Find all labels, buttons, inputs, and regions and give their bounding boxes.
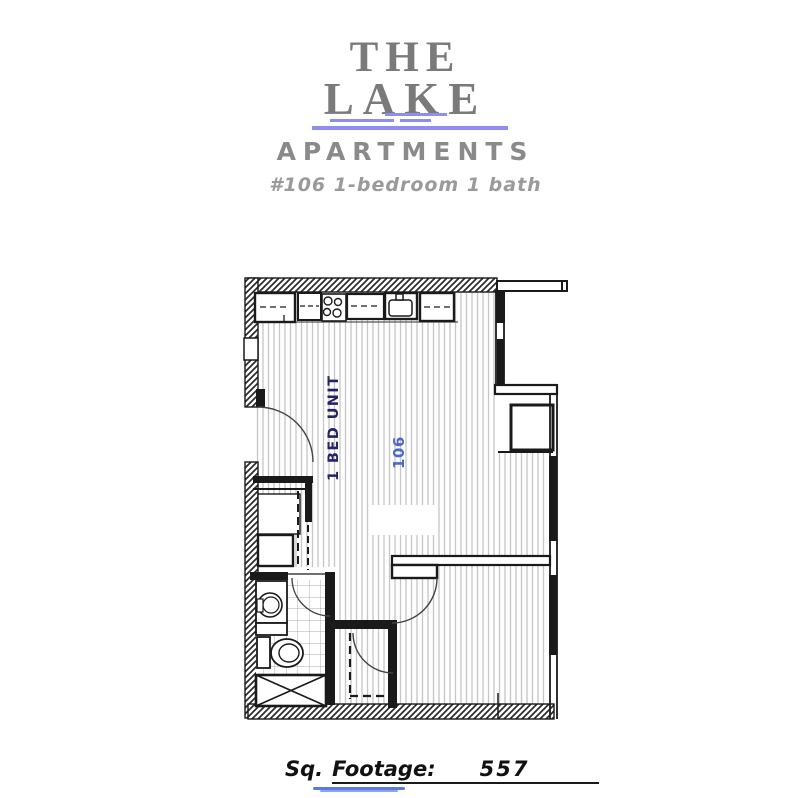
unit-subtitle: #106 1-bedroom 1 bath: [0, 174, 811, 196]
shaft-column: [511, 405, 553, 450]
toilet-icon: [271, 639, 303, 667]
window-bar: [549, 575, 557, 655]
brand-name-line1: THE: [0, 36, 811, 79]
blue-squiggle-underline-2: [320, 790, 398, 792]
kitchen: [253, 293, 458, 322]
brand-word-apartments: APARTMENTS: [0, 139, 811, 164]
window-bar: [496, 290, 505, 323]
unit-type-label: 1 BED UNIT: [326, 375, 342, 481]
bathroom: [250, 572, 335, 706]
logo-wave-line-4: [312, 126, 508, 130]
blank-label-patch: [372, 505, 437, 535]
window-bar: [549, 456, 557, 541]
square-footage-row: Sq. Footage: 557: [285, 757, 599, 784]
washer-icon: [258, 494, 300, 534]
sq-footage-underline: Footage: 557: [332, 757, 599, 784]
corridor-wall-extension: [497, 281, 567, 291]
flyer-page: THE LAKE APARTMENTS #106 1-bedroom 1 bat…: [0, 0, 811, 798]
dryer-icon: [258, 535, 293, 566]
window-bar: [497, 339, 504, 387]
logo-wave-line-1: [385, 113, 447, 116]
sq-footage-label: Footage:: [332, 757, 435, 781]
sq-footage-prefix: Sq.: [285, 757, 323, 781]
sq-footage-value: 557: [480, 757, 530, 781]
wall-notch: [244, 338, 258, 360]
room-number-label: 106: [390, 436, 408, 469]
logo-wave-line-2: [330, 119, 394, 122]
wall-stub: [256, 389, 265, 407]
toilet-tank: [257, 637, 270, 668]
floor-plan-svg: 1 BED UNIT 106: [240, 275, 570, 725]
logo-wave-line-3: [400, 119, 431, 122]
